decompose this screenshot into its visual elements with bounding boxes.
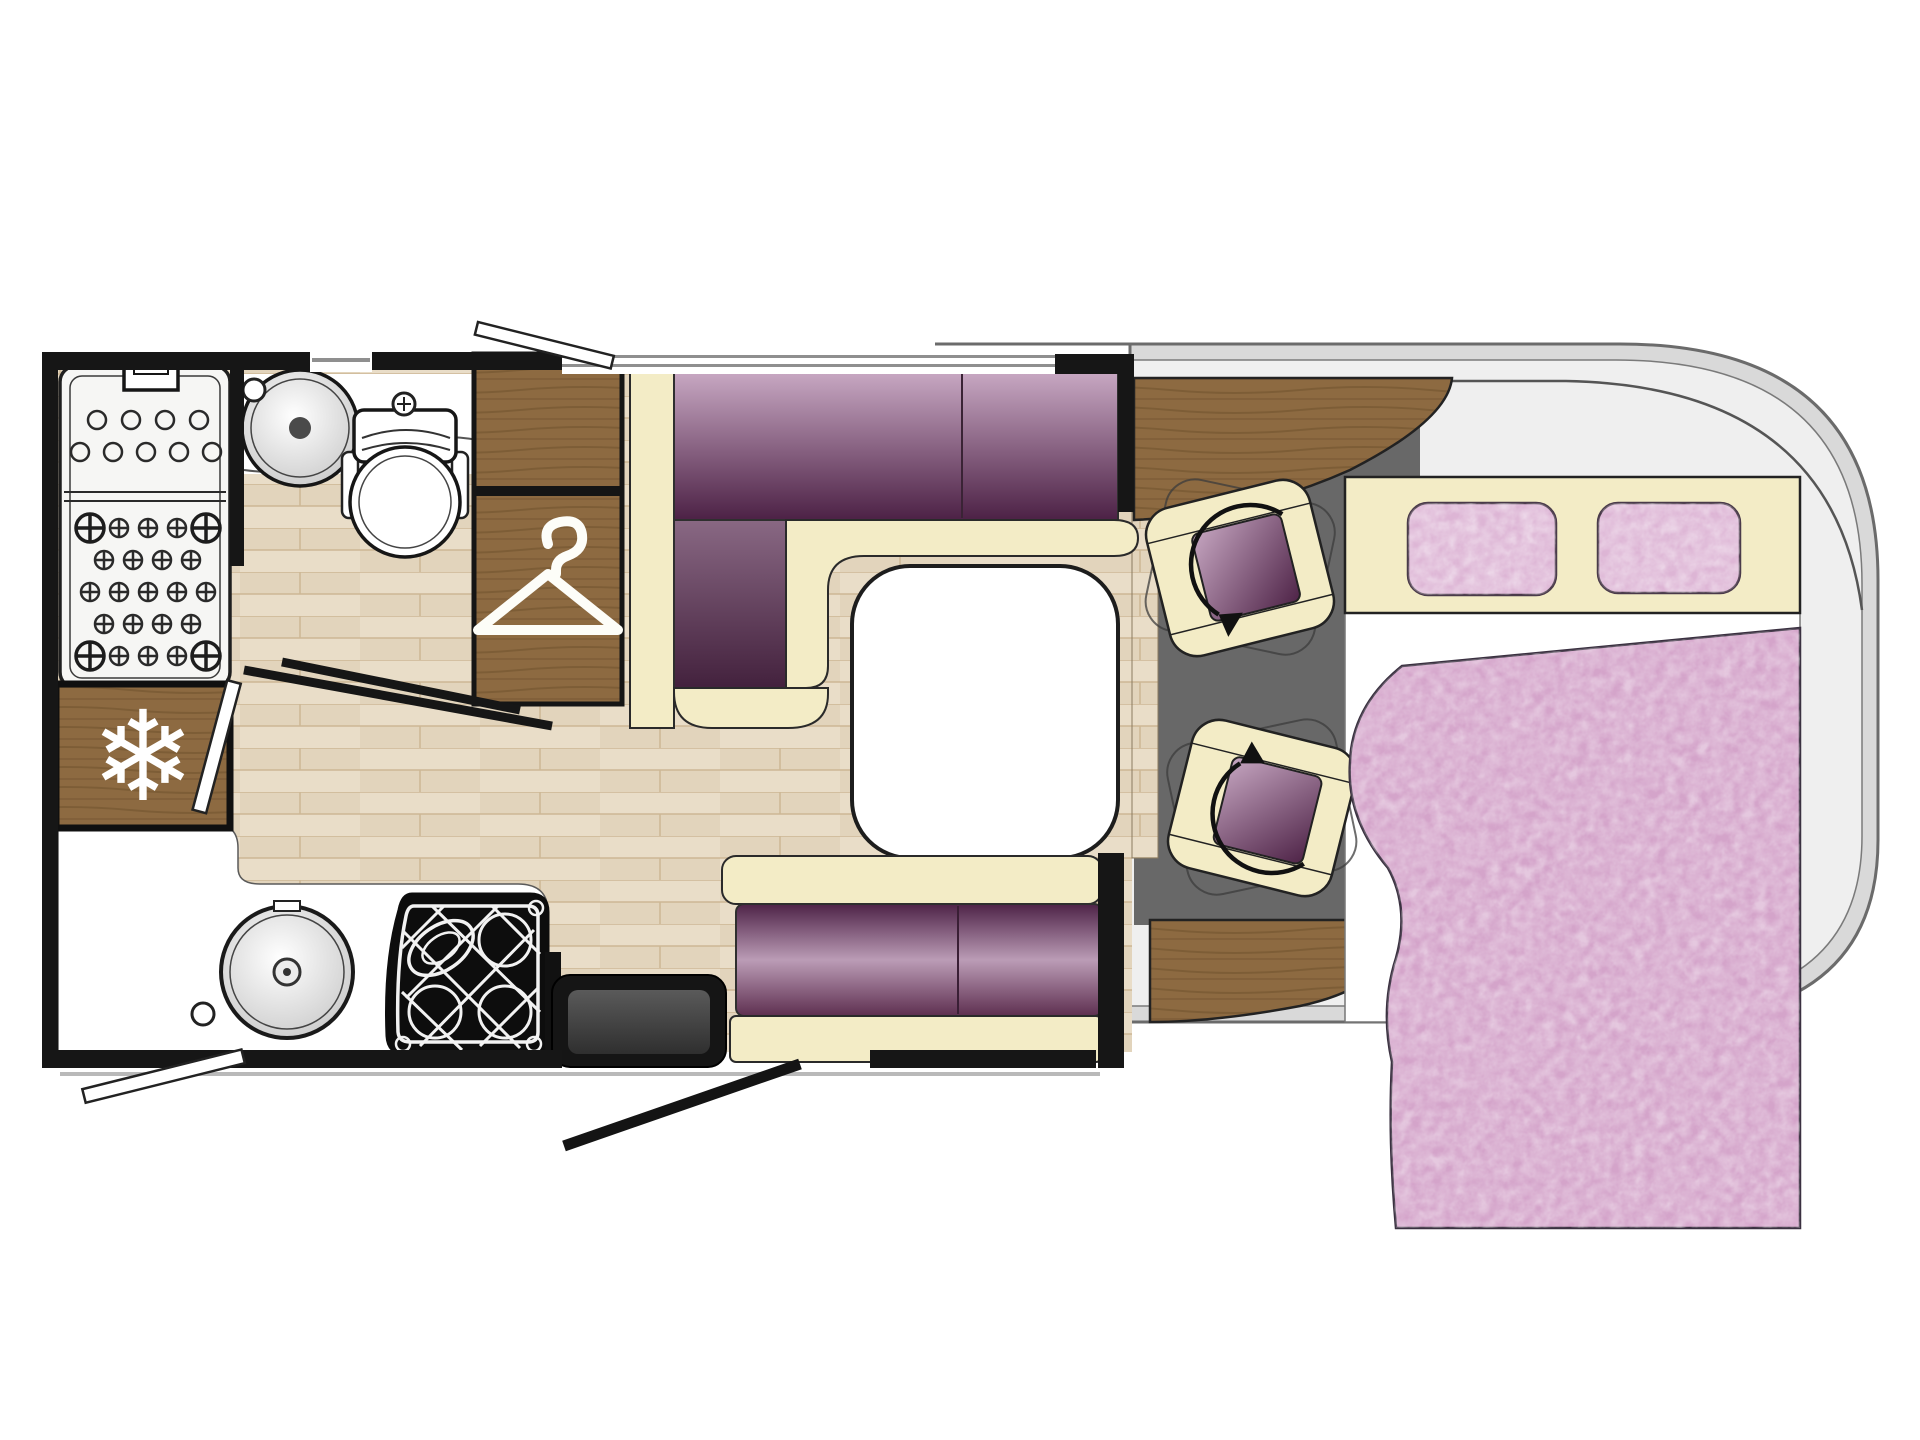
sofa-backrest-strip	[630, 372, 674, 728]
tap-knob	[192, 1003, 214, 1025]
wall-washroom-divider	[230, 370, 244, 566]
wall-top	[42, 352, 310, 370]
wall-left	[42, 352, 58, 1068]
wash-basin	[242, 370, 358, 486]
gas-stove	[387, 894, 549, 1054]
floorplan-svg: ❄	[0, 0, 1920, 1440]
pillow	[1408, 503, 1556, 595]
bench-backrest	[722, 856, 1102, 904]
partition-wall	[1098, 853, 1124, 1068]
wall-top-stub	[1055, 354, 1134, 374]
duvet	[1350, 628, 1800, 1228]
bench-cushions	[736, 904, 1102, 1016]
snowflake-icon: ❄	[91, 685, 196, 830]
entrance-step	[552, 975, 726, 1067]
partition-wall	[1118, 372, 1134, 512]
wardrobe	[474, 354, 622, 704]
shower-tray	[60, 354, 230, 688]
wall-bottom	[870, 1050, 1096, 1068]
sofa-side-cushion	[674, 520, 786, 688]
body-bottom-line	[60, 1072, 1100, 1076]
floorplan-page: ❄	[0, 0, 1920, 1440]
wall-bottom	[42, 1050, 562, 1068]
toilet	[342, 393, 468, 557]
wardrobe-divider	[474, 486, 622, 496]
wall-top	[372, 352, 562, 370]
dinette-bench	[722, 856, 1102, 1062]
sofa-top-cushion	[674, 372, 1118, 520]
tap-knob	[243, 379, 265, 401]
tap-fixture	[274, 901, 300, 911]
dinette-table	[852, 566, 1118, 858]
sofa-trim-end	[674, 688, 828, 728]
toilet-bowl	[350, 447, 460, 557]
pillow	[1598, 503, 1740, 593]
